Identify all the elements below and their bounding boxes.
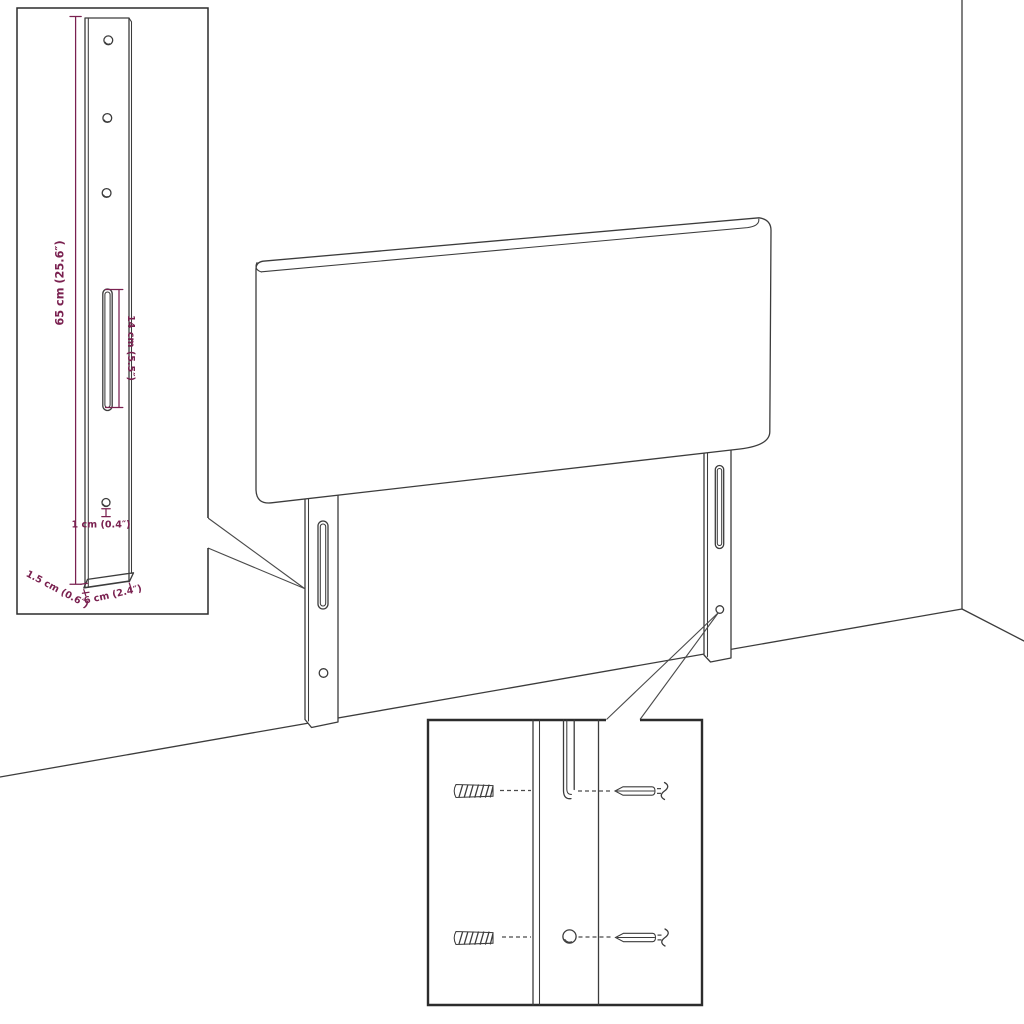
bracket-detail-inset: 65 cm (25.6″) 14 cm (5.5″) 1 cm (0.4″) 1… <box>17 8 208 614</box>
headboard-assembly-diagram: 65 cm (25.6″) 14 cm (5.5″) 1 cm (0.4″) 1… <box>0 0 1024 1024</box>
floor-line-right <box>962 609 1024 641</box>
callout-wedge-bracket-inset <box>208 518 305 589</box>
diagram-canvas: 65 cm (25.6″) 14 cm (5.5″) 1 cm (0.4″) 1… <box>0 0 1024 1024</box>
dimension-label-slot: 14 cm (5.5″) <box>125 315 136 381</box>
headboard-panel <box>256 218 771 503</box>
left-mounting-leg <box>305 489 338 728</box>
right-mounting-leg <box>704 438 731 662</box>
dimension-label-hole: 1 cm (0.4″) <box>71 520 130 531</box>
callout-wedge-mounting-inset <box>607 613 719 720</box>
right-leg-slot <box>715 466 723 549</box>
dimension-label-height: 65 cm (25.6″) <box>54 240 67 325</box>
left-leg-slot <box>318 521 328 609</box>
mounting-detail-inset <box>428 720 702 1005</box>
